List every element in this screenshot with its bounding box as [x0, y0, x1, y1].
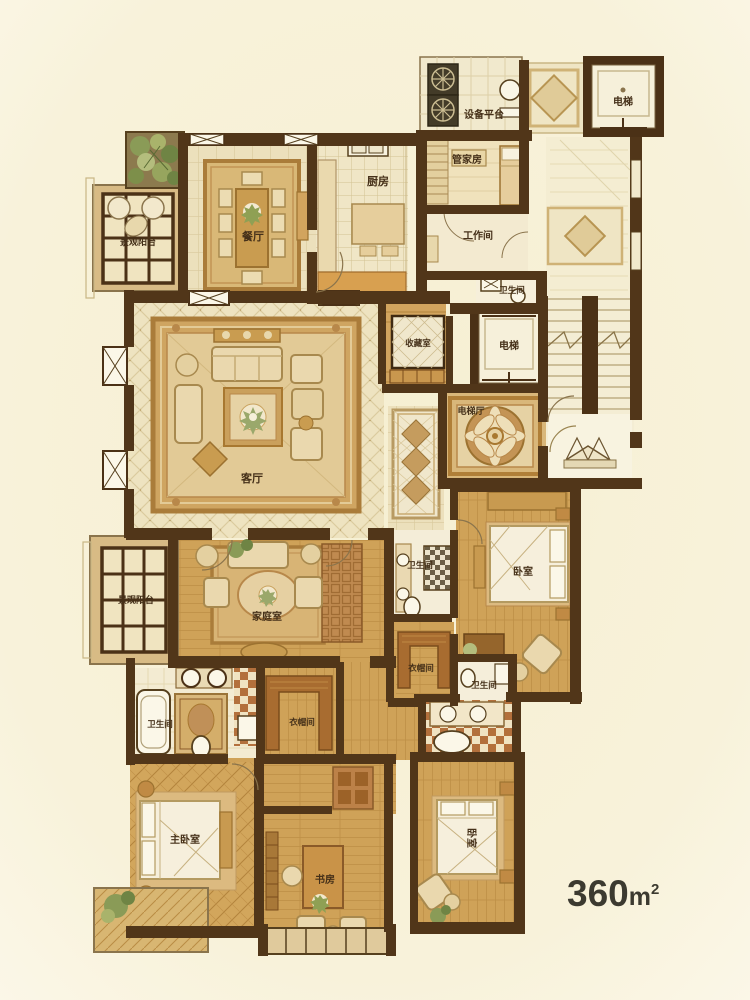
svg-text:衣帽间: 衣帽间 [408, 663, 434, 673]
svg-text:收藏室: 收藏室 [405, 338, 431, 348]
svg-text:卧室: 卧室 [513, 565, 533, 578]
svg-text:厨房: 厨房 [367, 174, 389, 188]
svg-text:书房: 书房 [315, 873, 335, 886]
svg-text:主卧室: 主卧室 [170, 833, 200, 846]
svg-text:电梯厅: 电梯厅 [457, 405, 484, 416]
svg-text:衣帽间: 衣帽间 [289, 717, 315, 727]
svg-text:家庭室: 家庭室 [252, 610, 282, 623]
svg-text:景观阳台: 景观阳台 [120, 236, 156, 247]
svg-text:卫生间: 卫生间 [407, 560, 433, 570]
svg-text:卫生间: 卫生间 [499, 285, 525, 295]
svg-text:客厅: 客厅 [240, 471, 263, 485]
svg-text:管家房: 管家房 [452, 153, 482, 166]
svg-text:卫生间: 卫生间 [147, 719, 173, 729]
svg-text:工作间: 工作间 [463, 229, 493, 242]
svg-text:设备平台: 设备平台 [464, 108, 504, 121]
svg-text:餐厅: 餐厅 [241, 229, 264, 243]
svg-text:电梯: 电梯 [499, 339, 519, 352]
svg-text:卫生间: 卫生间 [471, 680, 497, 690]
svg-text:景观阳台: 景观阳台 [118, 594, 154, 605]
svg-text:卧室: 卧室 [465, 828, 478, 848]
svg-text:电梯: 电梯 [613, 95, 633, 108]
